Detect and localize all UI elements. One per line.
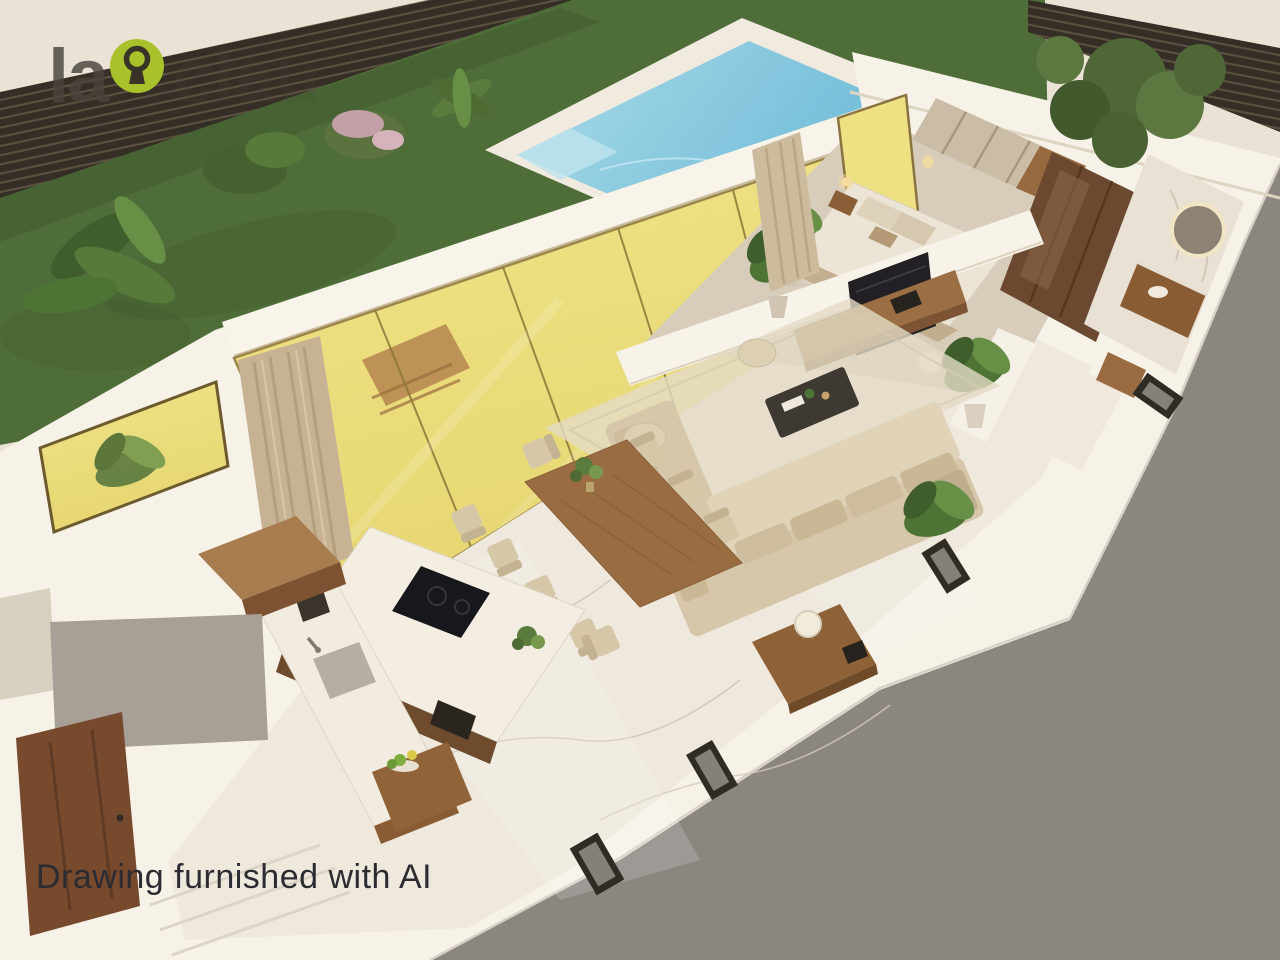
vase — [586, 482, 594, 492]
scene: la clau Drawing furnished with AI — [0, 0, 1280, 960]
round-lamp — [795, 611, 821, 637]
vanity-sink — [1148, 286, 1168, 298]
round-mirror — [1172, 204, 1224, 256]
front-door — [16, 712, 140, 936]
door-handle — [117, 815, 124, 822]
bedside-lamp — [842, 178, 851, 187]
wall-lamp — [922, 156, 934, 168]
caption-text: Drawing furnished with AI — [36, 858, 432, 896]
pouf — [738, 339, 776, 367]
faucet — [315, 647, 321, 653]
brand-watermark: la clau — [48, 34, 320, 119]
watermark-prefix: la — [48, 34, 110, 119]
keyhole-icon — [110, 39, 164, 93]
watermark-suffix: clau — [172, 34, 320, 119]
rendered-floorplan-image: la clau Drawing furnished with AI — [0, 0, 1280, 960]
